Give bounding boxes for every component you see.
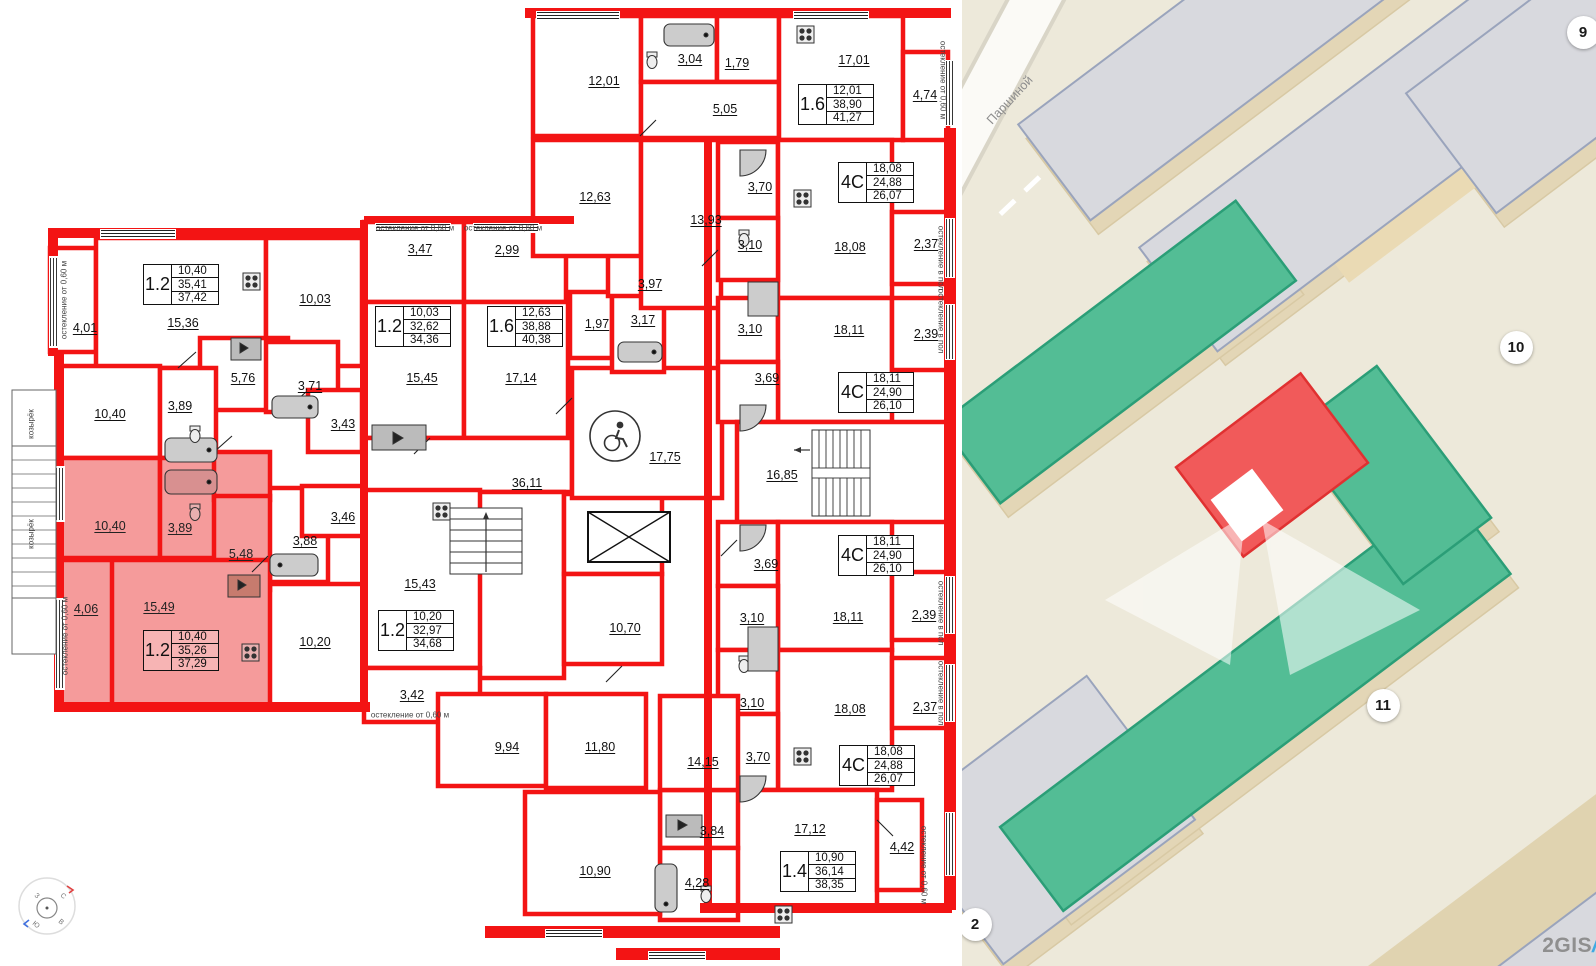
glazing-note: остекление от 0,60 м: [920, 826, 929, 904]
glazing-note: остекление от 0,60 м: [376, 224, 454, 233]
apartment-spec-box[interactable]: 1.210,2032,9734,68: [378, 610, 454, 651]
glazing-note: остекление в пол: [937, 581, 946, 645]
stairs-secondary: [450, 508, 522, 574]
room-area-label: 18,11: [833, 610, 863, 624]
room-area-label: 10,70: [609, 621, 640, 635]
apartment-area-value: 10,03: [404, 307, 450, 320]
room-area-label: 18,08: [834, 240, 865, 254]
apartment-area-value: 34,36: [404, 334, 450, 346]
glazing-note: остекление в пол: [937, 226, 946, 290]
apartment-area-value: 18,08: [867, 163, 913, 176]
apartment-spec-box[interactable]: 4С18,1124,9026,10: [838, 372, 914, 413]
room-area-label: 1,79: [725, 56, 749, 70]
apartment-area-value: 24,90: [867, 386, 913, 399]
room-area-label: 3,10: [740, 696, 764, 710]
room-area-label: 17,01: [838, 53, 869, 67]
room-area-label: 3,10: [740, 611, 764, 625]
room-area-label: 2,37: [913, 700, 937, 714]
room-area-label: 3,42: [400, 688, 424, 702]
glazing-note: остекление в пол: [937, 661, 946, 725]
map-entrance-marker[interactable]: 11: [1367, 689, 1400, 722]
apartment-area-value: 36,14: [809, 865, 855, 878]
apartment-area-value: 10,90: [809, 852, 855, 865]
room-area-label: 12,01: [588, 74, 619, 88]
apartment-area-value: 24,90: [867, 549, 913, 562]
room-area-label: 13,93: [690, 213, 721, 227]
watermark-slash: /: [1592, 931, 1596, 957]
apartment-area-value: 32,97: [407, 624, 453, 637]
room-area-label: 10,20: [299, 635, 330, 649]
apartment-spec-box[interactable]: 1.410,9036,1438,35: [780, 851, 856, 892]
map-panel[interactable]: Паршиной: [962, 0, 1596, 966]
glazing-note: остекление от 0,60 м: [60, 261, 69, 339]
apartment-area-value: 26,10: [867, 563, 913, 575]
apartment-area-value: 24,88: [867, 176, 913, 189]
apartment-area-value: 10,40: [172, 631, 218, 644]
room-area-label: 16,85: [766, 468, 797, 482]
room-area-label: 3,46: [331, 510, 355, 524]
room-area-label: 3,88: [293, 534, 317, 548]
apartment-type: 1.2: [379, 611, 407, 650]
apartment-type: 4С: [839, 163, 867, 202]
apartment-spec-box[interactable]: 1.210,4035,2637,29: [143, 630, 219, 671]
room-area-label: 14,15: [687, 755, 718, 769]
apartment-area-value: 40,38: [516, 334, 562, 346]
apartment-spec-box[interactable]: 4С18,0824,8826,07: [838, 162, 914, 203]
apartment-area-value: 41,27: [827, 112, 873, 124]
glazing-note: остекление от 0,60 м: [464, 224, 542, 233]
room-area-label: 18,11: [834, 323, 864, 337]
room-area-label: 3,10: [738, 238, 762, 252]
room-area-label: 3,69: [755, 371, 779, 385]
room-area-label: 3,04: [678, 52, 702, 66]
map-entrance-marker[interactable]: 2: [962, 908, 992, 941]
room-area-label: 3,69: [754, 557, 778, 571]
room-area-label: 2,99: [495, 243, 519, 257]
room-area-label: 15,45: [406, 371, 437, 385]
glazing-note: остекление от 0,60 м: [61, 597, 70, 675]
room-area-label: 17,14: [505, 371, 536, 385]
apartment-area-value: 26,10: [867, 400, 913, 412]
apartment-type: 1.4: [781, 852, 809, 891]
room-area-label: 5,48: [229, 547, 253, 561]
room-area-label: 4,74: [913, 88, 937, 102]
apartment-area-value: 26,07: [867, 190, 913, 202]
apartment-area-value: 38,35: [809, 879, 855, 891]
apartment-spec-box[interactable]: 1.612,0138,9041,27: [798, 84, 874, 125]
apartment-area-value: 38,90: [827, 98, 873, 111]
room-area-label: 10,03: [299, 292, 330, 306]
apartment-type: 1.6: [799, 85, 827, 124]
apartment-spec-box[interactable]: 4С18,1124,9026,10: [838, 535, 914, 576]
room-area-label: 3,89: [168, 521, 192, 535]
apartment-area-value: 12,01: [827, 85, 873, 98]
apartment-area-value: 37,29: [172, 658, 218, 670]
apartment-area-value: 18,11: [867, 536, 913, 549]
room-area-label: 2,39: [914, 327, 938, 341]
apartment-area-value: 18,08: [868, 746, 914, 759]
apartment-area-value: 38,88: [516, 320, 562, 333]
room-area-label: 9,94: [495, 740, 519, 754]
room-area-label: 3,89: [168, 399, 192, 413]
room-area-label: 2,37: [914, 237, 938, 251]
map-entrance-marker[interactable]: 9: [1567, 16, 1596, 49]
room-area-label: 1,97: [585, 317, 609, 331]
room-area-label: 3,84: [700, 824, 724, 838]
wheelchair-icon: [590, 411, 640, 461]
glazing-note: козырёк: [27, 409, 36, 439]
room-area-label: 4,28: [685, 876, 709, 890]
room-area-label: 11,80: [585, 740, 615, 754]
room-area-label: 15,36: [167, 316, 198, 330]
room-area-label: 5,05: [713, 102, 737, 116]
apartment-area-value: 35,41: [172, 278, 218, 291]
apartment-spec-box[interactable]: 1.210,0332,6234,36: [375, 306, 451, 347]
room-area-label: 3,71: [298, 379, 322, 393]
compass-icon: С В Ю З: [19, 878, 75, 934]
room-area-label: 3,70: [748, 180, 772, 194]
apartment-type: 1.2: [144, 631, 172, 670]
room-area-label: 12,63: [579, 190, 610, 204]
apartment-spec-box[interactable]: 1.210,4035,4137,42: [143, 264, 219, 305]
apartment-type: 1.2: [376, 307, 404, 346]
room-area-label: 5,76: [231, 371, 255, 385]
apartment-area-value: 32,62: [404, 320, 450, 333]
room-area-label: 10,90: [579, 864, 610, 878]
apartment-area-value: 35,26: [172, 644, 218, 657]
map-watermark: 2GIS/: [1542, 931, 1596, 958]
room-area-label: 18,08: [834, 702, 865, 716]
floorplan-panel: С В Ю З 4,0115,3610,033,472,9912,013,041…: [0, 0, 962, 966]
room-area-label: 10,40: [94, 519, 125, 533]
apartment-spec-box[interactable]: 1.612,6338,8840,38: [487, 306, 563, 347]
glazing-note: остекление от 0,60 м: [371, 711, 449, 720]
room-area-label: 3,47: [408, 242, 432, 256]
room-area-label: 15,49: [143, 600, 174, 614]
apartment-type: 4С: [839, 536, 867, 575]
glazing-note: остекление от 0,60 м: [939, 41, 948, 119]
room-area-label: 3,10: [738, 322, 762, 336]
apartment-area-value: 12,63: [516, 307, 562, 320]
glazing-note: остекление в пол: [937, 289, 946, 353]
map-entrance-marker[interactable]: 10: [1500, 331, 1533, 364]
apartment-type: 1.6: [488, 307, 516, 346]
room-area-label: 3,43: [331, 417, 355, 431]
apartment-area-value: 37,42: [172, 292, 218, 304]
apartment-area-value: 18,11: [867, 373, 913, 386]
apartment-area-value: 34,68: [407, 638, 453, 650]
room-area-label: 4,06: [74, 602, 98, 616]
map-drawing: Паршиной: [962, 0, 1596, 966]
room-area-label: 15,43: [404, 577, 435, 591]
apartment-type: 1.2: [144, 265, 172, 304]
room-area-label: 4,01: [73, 321, 97, 335]
room-area-label: 36,11: [512, 476, 542, 490]
room-area-label: 3,97: [638, 277, 662, 291]
room-area-label: 3,17: [631, 313, 655, 327]
room-area-label: 10,40: [94, 407, 125, 421]
apartment-area-value: 26,07: [868, 773, 914, 785]
glazing-note: козырёк: [27, 519, 36, 549]
apartment-type: 4С: [840, 746, 868, 785]
apartment-area-value: 10,40: [172, 265, 218, 278]
apartment-area-value: 24,88: [868, 759, 914, 772]
elevator-shaft: [588, 512, 670, 562]
apartment-area-value: 10,20: [407, 611, 453, 624]
room-area-label: 4,42: [890, 840, 914, 854]
room-area-label: 17,75: [649, 450, 680, 464]
apartment-spec-box[interactable]: 4С18,0824,8826,07: [839, 745, 915, 786]
room-area-label: 2,39: [912, 608, 936, 622]
room-area-label: 3,70: [746, 750, 770, 764]
room-area-label: 17,12: [794, 822, 825, 836]
apartment-type: 4С: [839, 373, 867, 412]
